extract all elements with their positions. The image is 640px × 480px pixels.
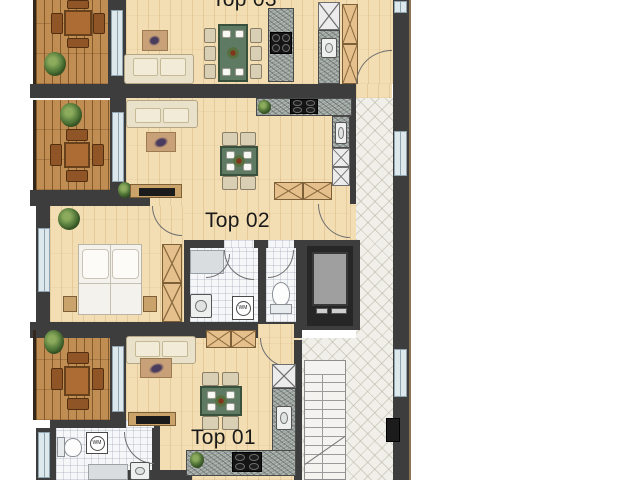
window	[38, 228, 50, 292]
dining-chair	[222, 176, 238, 190]
door-opening	[258, 324, 294, 338]
balcony-chair	[92, 368, 104, 390]
sofa	[126, 100, 198, 128]
dining-table	[220, 146, 258, 176]
door-opening	[268, 240, 294, 248]
dining-chair	[204, 46, 216, 61]
sofa	[124, 54, 194, 84]
table-centerpiece	[233, 155, 245, 167]
stair-landing-edge	[305, 374, 346, 375]
burner	[293, 100, 303, 106]
tv-stand	[128, 412, 176, 426]
stair-treads	[305, 374, 346, 480]
window	[38, 432, 50, 478]
nightstand	[63, 296, 77, 312]
tv-stand	[130, 184, 182, 198]
blanket-edge	[79, 283, 141, 284]
unit-label-top02: Top 02	[205, 209, 270, 233]
bed-divider	[110, 245, 111, 314]
interior-wall	[258, 248, 266, 322]
dining-chair	[250, 28, 262, 43]
dining-chair	[240, 132, 256, 146]
balcony-chair	[50, 144, 62, 166]
rug-motif	[146, 360, 165, 376]
sideboard	[206, 330, 231, 348]
kitchen-sink	[276, 406, 292, 430]
plate	[243, 163, 252, 171]
washing-machine-label: WM	[236, 301, 251, 316]
plate	[222, 30, 231, 38]
table-centerpiece	[227, 47, 239, 59]
tall-cabinet	[318, 2, 340, 30]
pillow	[82, 249, 109, 279]
burner	[282, 34, 290, 42]
burner	[282, 44, 290, 52]
wardrobe	[342, 4, 358, 44]
balcony-railing	[33, 0, 36, 84]
outer-wall	[393, 0, 409, 480]
rug	[140, 358, 172, 378]
balcony-chair	[67, 38, 89, 48]
unit-label-top01: Top 01	[191, 426, 256, 450]
balcony-chair	[92, 144, 104, 166]
tv	[139, 188, 175, 196]
plate	[235, 68, 244, 76]
x-pattern-icon	[319, 3, 339, 29]
window	[394, 131, 407, 176]
plate	[222, 68, 231, 76]
x-pattern-icon	[163, 284, 181, 321]
double-bed	[78, 244, 142, 315]
electrical-panel	[386, 418, 400, 442]
washing-machine: WM	[86, 432, 108, 454]
plant	[58, 208, 80, 230]
cooktop	[270, 32, 292, 54]
rug-motif	[147, 33, 164, 48]
toilet-bowl	[272, 282, 290, 306]
sofa-cushion	[163, 108, 189, 124]
plate	[226, 391, 235, 399]
shower	[88, 464, 128, 480]
kitchen-sink	[335, 122, 347, 144]
x-pattern-icon	[163, 245, 181, 282]
balcony-chair	[67, 398, 89, 410]
tall-cabinet	[332, 148, 350, 167]
plant	[190, 452, 204, 468]
tall-cabinet	[332, 167, 350, 186]
plate	[226, 403, 235, 411]
balcony-chair	[66, 170, 88, 182]
window	[111, 10, 123, 76]
burner	[249, 463, 259, 470]
balcony-railing	[33, 330, 36, 420]
dining-chair	[222, 132, 238, 146]
wardrobe	[162, 283, 182, 322]
rug	[146, 132, 176, 152]
rug	[142, 30, 168, 51]
balcony-table	[64, 366, 90, 396]
plant	[258, 100, 271, 114]
plant	[44, 330, 64, 354]
tv	[136, 416, 170, 424]
balcony-chair	[67, 352, 89, 364]
washing-machine-label: WM	[90, 436, 105, 451]
table-centerpiece	[215, 395, 227, 407]
balcony-chair	[51, 368, 63, 390]
balcony-table	[64, 10, 92, 36]
bathroom-sink	[130, 462, 150, 480]
stairs	[304, 360, 346, 480]
sofa-cushion	[133, 58, 158, 75]
sofa-cushion	[135, 108, 161, 124]
door-opening	[224, 240, 254, 248]
plant	[44, 52, 66, 76]
x-pattern-icon	[333, 168, 349, 185]
plant	[60, 103, 82, 127]
toilet-bowl	[64, 438, 82, 457]
sideboard	[231, 330, 256, 348]
window	[394, 349, 407, 397]
sideboard	[303, 182, 332, 200]
burner	[235, 454, 245, 461]
balcony-railing	[33, 100, 36, 190]
balcony-chair	[67, 0, 89, 9]
stair-divider	[322, 374, 323, 480]
elevator-cab	[312, 252, 348, 306]
burner	[272, 34, 280, 42]
dining-chair	[204, 64, 216, 79]
sofa-cushion	[160, 58, 185, 75]
rug-motif	[152, 134, 170, 150]
x-pattern-icon	[275, 183, 302, 199]
dining-chair	[240, 176, 256, 190]
balcony-chair	[93, 13, 105, 34]
kitchen-sink	[321, 38, 337, 58]
pillow	[112, 249, 139, 279]
sofa-cushion	[162, 341, 187, 357]
door-opening	[356, 84, 392, 98]
x-pattern-icon	[343, 45, 357, 83]
cooktop	[232, 452, 262, 472]
window	[112, 112, 124, 182]
burner	[235, 463, 245, 470]
window	[112, 346, 124, 412]
sideboard	[274, 182, 303, 200]
dining-chair	[250, 46, 262, 61]
dining-chair	[202, 372, 219, 386]
elevator-door-sill	[331, 308, 347, 314]
x-pattern-icon	[232, 331, 255, 347]
dining-chair	[250, 64, 262, 79]
x-pattern-icon	[304, 183, 331, 199]
washing-machine: WM	[232, 296, 254, 320]
door-opening	[350, 204, 356, 240]
nightstand	[143, 296, 157, 312]
balcony-chair	[51, 13, 63, 34]
dining-table	[218, 24, 248, 82]
burner	[306, 107, 316, 113]
window	[394, 1, 407, 13]
interior-wall	[30, 84, 356, 98]
wardrobe	[162, 244, 182, 283]
x-pattern-icon	[343, 5, 357, 43]
unit-label-top03: Top 03	[212, 0, 277, 12]
plate	[235, 30, 244, 38]
balcony-chair	[66, 129, 88, 141]
dining-table	[200, 386, 242, 416]
burner	[293, 107, 303, 113]
x-pattern-icon	[273, 365, 295, 387]
x-pattern-icon	[207, 331, 230, 347]
dining-chair	[222, 372, 239, 386]
x-pattern-icon	[333, 149, 349, 166]
cooktop	[290, 99, 318, 114]
floor-plan: Top 03	[0, 0, 640, 480]
dining-chair	[204, 28, 216, 43]
burner	[272, 44, 280, 52]
plate	[207, 403, 216, 411]
elevator-door-sill	[316, 308, 328, 314]
burner	[306, 100, 316, 106]
toilet-tank	[270, 304, 292, 314]
sofa-cushion	[135, 341, 160, 357]
bathroom-sink	[190, 294, 212, 318]
balcony-table	[64, 142, 90, 168]
burner	[249, 454, 259, 461]
tall-cabinet	[272, 364, 296, 388]
facade-trim	[409, 0, 411, 480]
